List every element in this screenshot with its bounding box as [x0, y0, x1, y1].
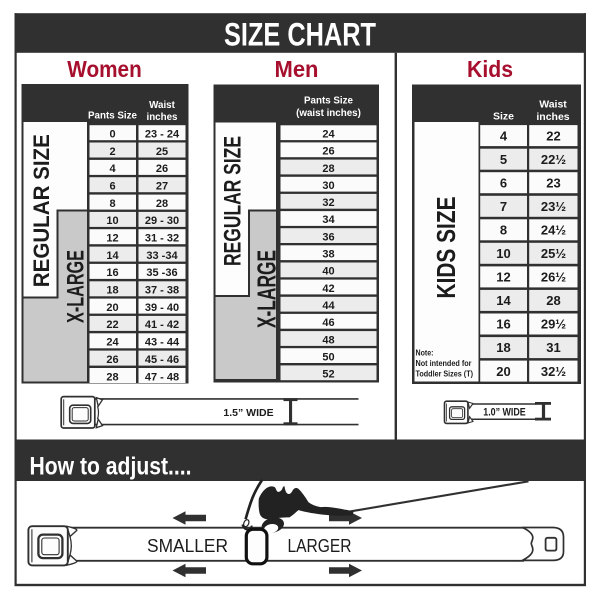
svg-text:Not intended for: Not intended for: [416, 358, 473, 368]
svg-text:33 -34: 33 -34: [146, 250, 178, 262]
svg-text:18: 18: [106, 285, 118, 297]
svg-text:27: 27: [156, 181, 168, 193]
svg-text:29½: 29½: [541, 317, 566, 332]
svg-text:6: 6: [500, 175, 507, 190]
svg-text:25½: 25½: [541, 246, 566, 261]
svg-text:inches: inches: [146, 112, 178, 123]
svg-text:10: 10: [496, 246, 510, 261]
svg-text:23½: 23½: [541, 199, 566, 214]
svg-text:52: 52: [322, 369, 334, 381]
svg-text:Kids: Kids: [467, 56, 513, 82]
svg-text:30: 30: [322, 180, 334, 192]
svg-text:22: 22: [546, 128, 560, 143]
svg-text:5: 5: [500, 152, 507, 167]
svg-text:16: 16: [496, 317, 510, 332]
svg-text:32½: 32½: [541, 364, 566, 379]
svg-text:25: 25: [156, 146, 168, 158]
svg-text:SMALLER: SMALLER: [147, 535, 228, 556]
svg-text:26: 26: [106, 354, 118, 366]
svg-text:Pants Size: Pants Size: [88, 110, 138, 121]
svg-text:31: 31: [546, 340, 560, 355]
svg-text:45 - 46: 45 - 46: [145, 354, 179, 366]
svg-text:8: 8: [500, 223, 507, 238]
svg-text:Waist: Waist: [539, 99, 567, 111]
svg-text:44: 44: [322, 300, 335, 312]
svg-text:43 - 44: 43 - 44: [145, 337, 180, 349]
svg-text:1.0” WIDE: 1.0” WIDE: [483, 406, 526, 418]
svg-text:KIDS SIZE: KIDS SIZE: [433, 197, 461, 299]
svg-text:26: 26: [322, 146, 334, 158]
svg-text:0: 0: [109, 129, 115, 141]
svg-text:24½: 24½: [541, 223, 566, 238]
svg-text:22½: 22½: [541, 152, 566, 167]
svg-text:20: 20: [496, 364, 510, 379]
svg-text:Waist: Waist: [149, 100, 176, 111]
svg-text:20: 20: [106, 302, 118, 314]
svg-text:18: 18: [496, 340, 510, 355]
svg-text:42: 42: [322, 283, 334, 295]
svg-text:8: 8: [109, 198, 115, 210]
svg-text:10: 10: [106, 215, 118, 227]
svg-text:32: 32: [322, 197, 334, 209]
svg-text:29 - 30: 29 - 30: [145, 215, 179, 227]
svg-text:24: 24: [106, 337, 119, 349]
svg-text:REGULAR SIZE: REGULAR SIZE: [29, 134, 54, 287]
svg-text:16: 16: [106, 267, 118, 279]
svg-text:7: 7: [500, 199, 507, 214]
svg-text:4: 4: [500, 128, 508, 143]
svg-text:SIZE CHART: SIZE CHART: [224, 16, 376, 52]
svg-text:4: 4: [109, 163, 116, 175]
svg-text:24: 24: [322, 129, 335, 141]
svg-text:28: 28: [546, 293, 560, 308]
svg-text:12: 12: [106, 233, 118, 245]
svg-text:26: 26: [156, 163, 168, 175]
svg-text:Toddler Sizes (T): Toddler Sizes (T): [416, 368, 474, 378]
svg-text:40: 40: [322, 266, 334, 278]
svg-text:LARGER: LARGER: [288, 535, 352, 556]
svg-text:1.5” WIDE: 1.5” WIDE: [223, 407, 273, 419]
svg-text:X-LARGE: X-LARGE: [251, 250, 281, 328]
svg-text:41 - 42: 41 - 42: [145, 319, 179, 331]
svg-text:How to adjust....: How to adjust....: [30, 452, 192, 480]
svg-text:37 - 38: 37 - 38: [145, 285, 179, 297]
svg-text:38: 38: [322, 249, 334, 261]
svg-text:28: 28: [156, 198, 168, 210]
svg-text:Pants Size: Pants Size: [304, 96, 354, 107]
svg-text:31 - 32: 31 - 32: [145, 233, 179, 245]
svg-text:Size: Size: [493, 111, 514, 123]
svg-text:X-LARGE: X-LARGE: [63, 250, 90, 323]
svg-text:34: 34: [322, 214, 335, 226]
svg-text:28: 28: [106, 371, 118, 383]
svg-text:(waist inches): (waist inches): [296, 108, 361, 119]
svg-text:35 -36: 35 -36: [146, 267, 177, 279]
svg-text:2: 2: [109, 146, 115, 158]
svg-text:46: 46: [322, 317, 334, 329]
svg-text:Men: Men: [275, 56, 319, 82]
svg-text:6: 6: [109, 181, 115, 193]
svg-text:inches: inches: [536, 111, 569, 123]
svg-text:36: 36: [322, 231, 334, 243]
svg-text:12: 12: [496, 270, 510, 285]
svg-text:28: 28: [322, 163, 334, 175]
svg-text:14: 14: [106, 250, 119, 262]
svg-text:Note:: Note:: [416, 347, 434, 357]
svg-text:23: 23: [546, 175, 560, 190]
svg-text:REGULAR SIZE: REGULAR SIZE: [220, 136, 247, 266]
svg-text:Women: Women: [67, 56, 142, 82]
svg-text:22: 22: [106, 319, 118, 331]
svg-text:39 - 40: 39 - 40: [145, 302, 179, 314]
svg-text:47 - 48: 47 - 48: [145, 371, 179, 383]
svg-text:14: 14: [496, 293, 511, 308]
svg-text:50: 50: [322, 351, 334, 363]
svg-text:48: 48: [322, 334, 334, 346]
svg-text:23 - 24: 23 - 24: [145, 129, 180, 141]
svg-text:26½: 26½: [541, 270, 566, 285]
